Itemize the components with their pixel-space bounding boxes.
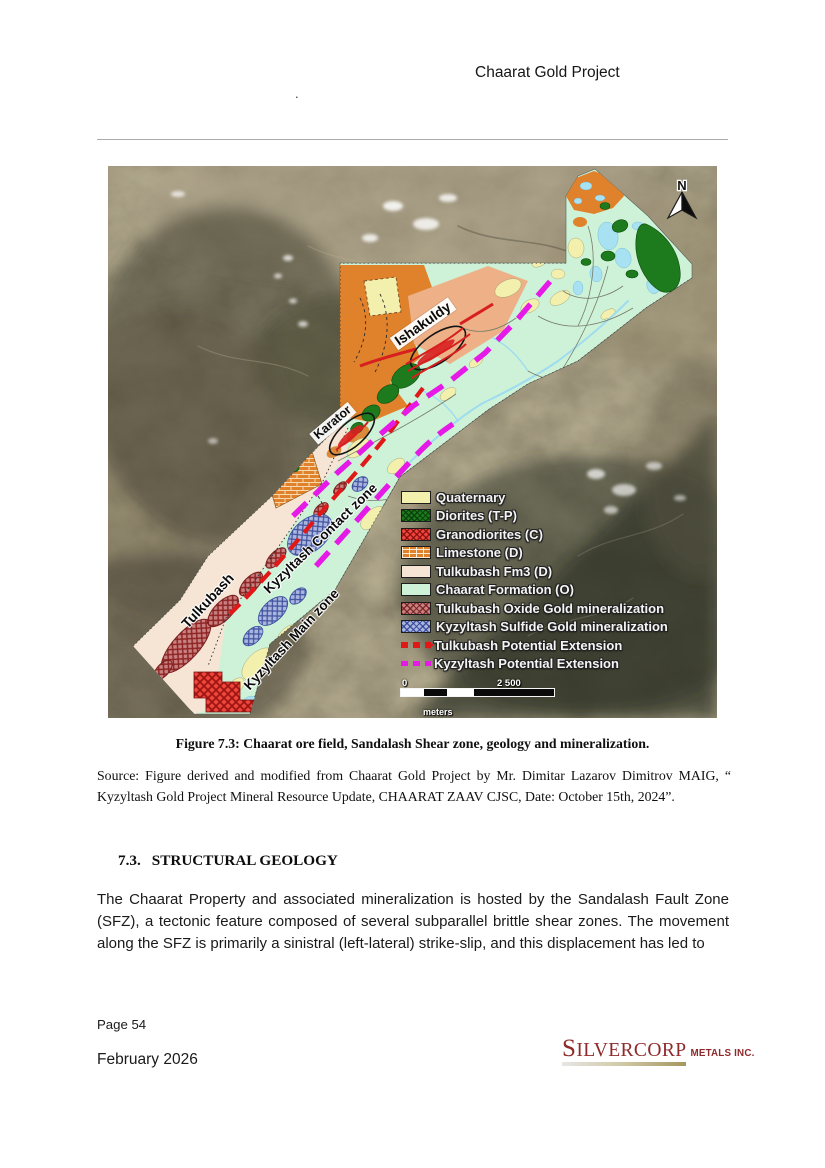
figure-caption: Figure 7.3: Chaarat ore field, Sandalash…: [97, 736, 728, 752]
header-title: Chaarat Gold Project: [475, 64, 620, 82]
legend-row: Tulkubash Oxide Gold mineralization: [401, 602, 668, 614]
figure-source-note: Source: Figure derived and modified from…: [97, 766, 731, 807]
company-logo: SILVERCORP METALS INC.: [562, 1036, 755, 1066]
scale-bar-segments: [401, 689, 554, 696]
scale-bar: 0 2 500 meters: [401, 678, 561, 696]
legend-symbol-tulkubash-extension: [401, 639, 431, 651]
legend-swatch-kyzyltash-sulfide: [401, 620, 431, 633]
legend-row: Granodiorites (C): [401, 528, 668, 540]
logo-wordmark: SILVERCORP: [562, 1036, 686, 1061]
legend-swatch-quaternary: [401, 491, 431, 504]
geology-map-figure: N Ishakuldy Karator Tulkubash Kyzyltash …: [108, 166, 717, 718]
legend-symbol-kyzyltash-extension: [401, 658, 431, 670]
legend-row: Chaarat Formation (O): [401, 584, 668, 596]
section-number: 7.3.: [118, 852, 141, 870]
legend-row: Kyzyltash Potential Extension: [401, 658, 668, 670]
legend-swatch-tulkubash-fm3: [401, 565, 431, 578]
header-divider: [97, 139, 728, 140]
footer-page-number: Page 54: [97, 1017, 146, 1032]
report-page: Chaarat Gold Project .: [0, 0, 825, 1168]
legend-row: Kyzyltash Sulfide Gold mineralization: [401, 621, 668, 633]
legend-swatch-tulkubash-oxide: [401, 602, 431, 615]
legend-swatch-chaarat-formation: [401, 583, 431, 596]
body-paragraph: The Chaarat Property and associated mine…: [97, 889, 729, 954]
legend-row: Diorites (T-P): [401, 510, 668, 522]
section-heading: 7.3. STRUCTURAL GEOLOGY: [118, 852, 338, 870]
legend-swatch-limestone: [401, 546, 431, 559]
legend-swatch-granodiorites: [401, 528, 431, 541]
stray-period-mark: .: [295, 86, 299, 101]
legend-row: Quaternary: [401, 491, 668, 503]
legend-swatch-diorites: [401, 509, 431, 522]
logo-underline-bar: [562, 1062, 686, 1066]
legend-row: Limestone (D): [401, 547, 668, 559]
footer-date: February 2026: [97, 1051, 198, 1069]
section-title: STRUCTURAL GEOLOGY: [152, 852, 338, 870]
svg-text:N: N: [677, 178, 686, 193]
legend-row: Tulkubash Potential Extension: [401, 639, 668, 651]
logo-suffix: METALS INC.: [690, 1048, 754, 1059]
map-legend: Quaternary Diorites (T-P) Granodiorites …: [401, 491, 668, 696]
legend-row: Tulkubash Fm3 (D): [401, 565, 668, 577]
